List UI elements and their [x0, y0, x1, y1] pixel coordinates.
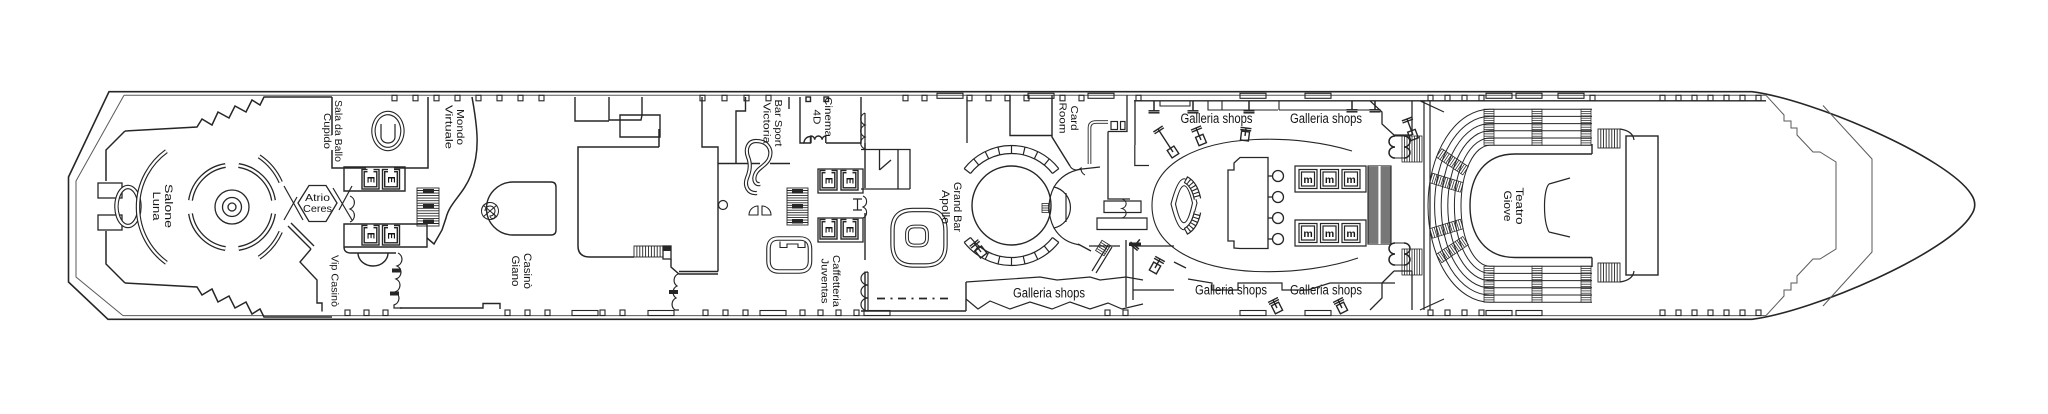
- svg-text:E: E: [822, 226, 833, 233]
- svg-text:Virtuale: Virtuale: [443, 105, 455, 149]
- svg-text:Vip Casinò: Vip Casinò: [328, 255, 340, 307]
- svg-text:Galleria shops: Galleria shops: [1290, 283, 1362, 298]
- svg-text:m: m: [1303, 228, 1312, 240]
- svg-text:E: E: [843, 226, 854, 233]
- svg-text:E: E: [364, 232, 375, 239]
- svg-text:Cinema: Cinema: [822, 97, 834, 137]
- svg-text:Galleria shops: Galleria shops: [1013, 286, 1085, 301]
- svg-text:Luna: Luna: [150, 192, 162, 222]
- svg-text:m: m: [1346, 228, 1355, 240]
- svg-text:Juventas: Juventas: [819, 259, 831, 304]
- svg-text:Galleria shops: Galleria shops: [1181, 111, 1253, 126]
- svg-text:Card: Card: [1068, 106, 1080, 131]
- svg-text:m: m: [1303, 174, 1312, 186]
- svg-text:E: E: [364, 176, 375, 183]
- svg-text:Casinò: Casinò: [521, 253, 533, 289]
- svg-text:Mondo: Mondo: [454, 109, 466, 145]
- svg-text:Cupido: Cupido: [321, 113, 333, 149]
- svg-text:Giove: Giove: [1501, 191, 1513, 222]
- svg-text:Victoria: Victoria: [761, 103, 773, 144]
- svg-text:E: E: [822, 177, 833, 184]
- svg-text:Bar Sport: Bar Sport: [772, 100, 784, 147]
- svg-text:E: E: [385, 176, 396, 183]
- svg-text:Galleria shops: Galleria shops: [1195, 283, 1267, 298]
- svg-text:m: m: [1346, 174, 1355, 186]
- svg-text:Caffetteria: Caffetteria: [830, 255, 842, 307]
- svg-text:Teatro: Teatro: [1513, 188, 1525, 225]
- svg-text:Ceres: Ceres: [303, 203, 332, 215]
- svg-text:E: E: [385, 232, 396, 239]
- svg-text:Grand Bar: Grand Bar: [951, 182, 963, 232]
- svg-text:m: m: [1325, 228, 1334, 240]
- svg-text:E: E: [843, 177, 854, 184]
- svg-text:m: m: [1325, 174, 1334, 186]
- svg-text:Salone: Salone: [162, 184, 174, 228]
- svg-text:Giano: Giano: [509, 256, 521, 287]
- svg-text:Room: Room: [1057, 103, 1069, 134]
- svg-text:4D: 4D: [811, 110, 823, 125]
- svg-text:Apollo: Apollo: [939, 190, 951, 224]
- svg-text:Galleria shops: Galleria shops: [1290, 111, 1362, 126]
